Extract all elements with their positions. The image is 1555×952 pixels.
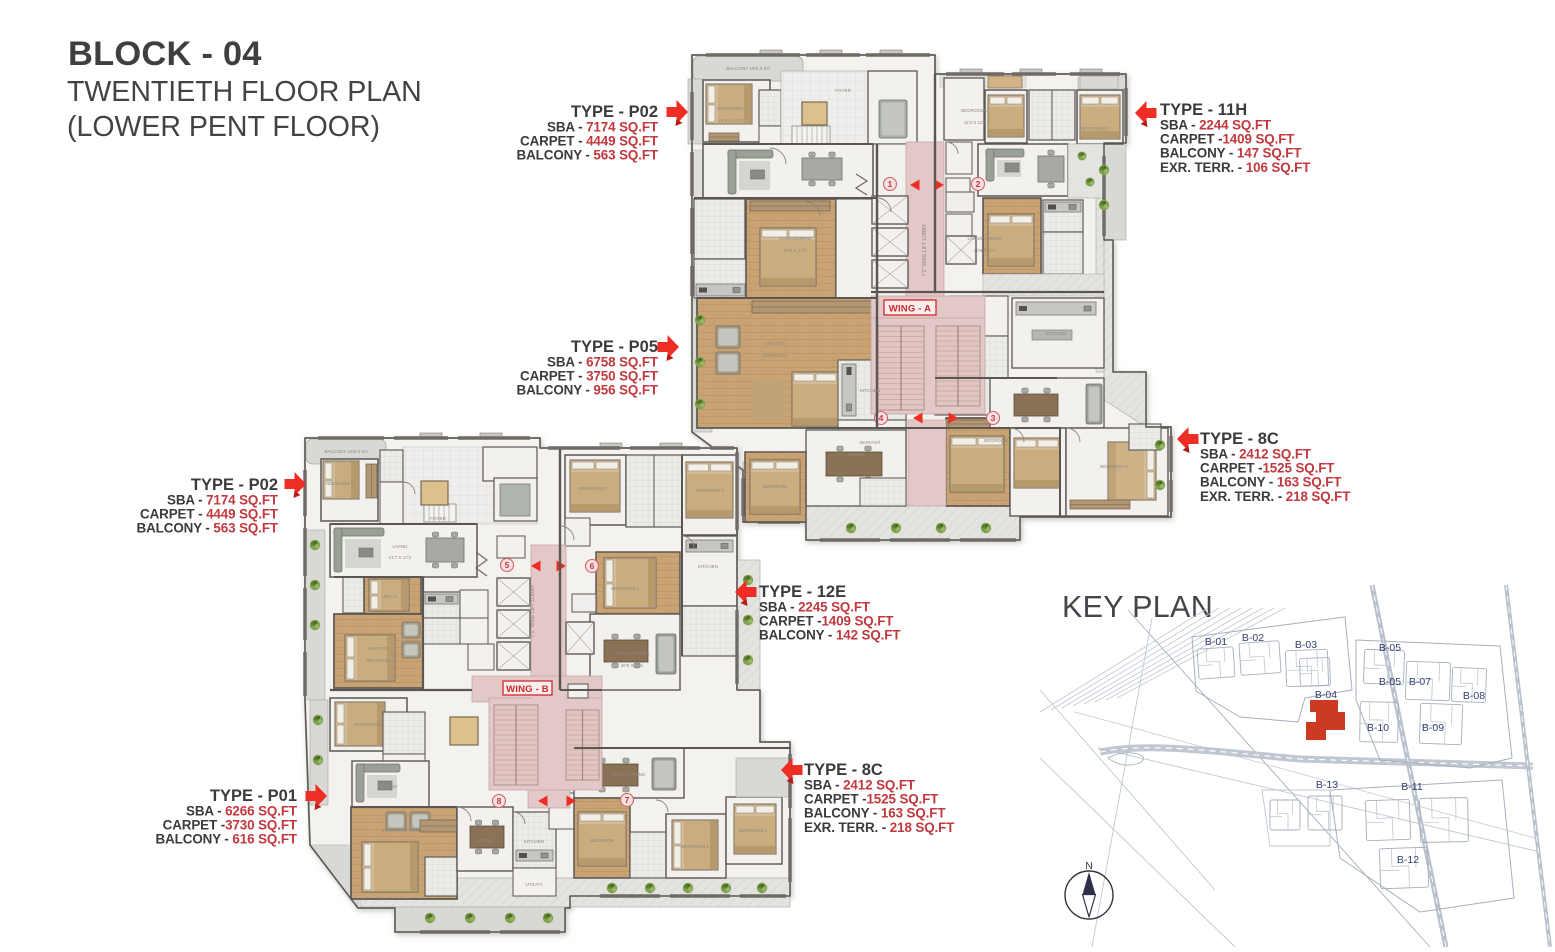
- svg-text:SBA - 7174 SQ.FT: SBA - 7174 SQ.FT: [167, 492, 279, 507]
- svg-text:CARPET - 4449 SQ.FT: CARPET - 4449 SQ.FT: [520, 134, 659, 149]
- svg-text:B-12: B-12: [1397, 854, 1419, 866]
- svg-text:TWENTIETH FLOOR PLAN: TWENTIETH FLOOR PLAN: [67, 76, 422, 108]
- svg-text:20'6 X 12'1: 20'6 X 12'1: [974, 248, 997, 253]
- svg-text:1: 1: [888, 179, 893, 189]
- svg-text:B-09: B-09: [1422, 722, 1444, 734]
- svg-text:BEDROOM 3: BEDROOM 3: [696, 488, 724, 493]
- svg-text:BALCONY - 163 SQ.FT: BALCONY - 163 SQ.FT: [804, 806, 946, 821]
- svg-text:BALCONY - 563 SQ.FT: BALCONY - 563 SQ.FT: [517, 148, 659, 163]
- svg-text:TYPE - P05: TYPE - P05: [571, 338, 658, 356]
- svg-text:TYPE - 8C: TYPE - 8C: [804, 761, 883, 779]
- svg-text:BEDROOM 2: BEDROOM 2: [1081, 126, 1109, 131]
- svg-text:EXR. TERR. - 218 SQ.FT: EXR. TERR. - 218 SQ.FT: [804, 820, 955, 835]
- svg-text:BEDROOM 3: BEDROOM 3: [961, 108, 989, 113]
- svg-text:MASTER: MASTER: [765, 341, 785, 346]
- svg-text:BALCONY - 616 SQ.FT: BALCONY - 616 SQ.FT: [156, 832, 298, 847]
- svg-text:TYPE - 8C: TYPE - 8C: [1200, 430, 1279, 448]
- svg-text:BEDROOM 3: BEDROOM 3: [611, 586, 639, 591]
- svg-text:BALCONY - 147 SQ.FT: BALCONY - 147 SQ.FT: [1160, 146, 1302, 161]
- svg-text:DINING: DINING: [477, 838, 494, 843]
- svg-text:BALCONY - 956 SQ.FT: BALCONY - 956 SQ.FT: [517, 383, 659, 398]
- svg-text:MASTER BEDROOM: MASTER BEDROOM: [382, 828, 426, 833]
- svg-text:LIVING / DINING: LIVING / DINING: [615, 651, 650, 656]
- svg-text:CARPET -1409 SQ.FT: CARPET -1409 SQ.FT: [1160, 132, 1295, 147]
- svg-text:KITCHEN: KITCHEN: [1046, 331, 1066, 336]
- svg-text:LIVING / DINING: LIVING / DINING: [611, 772, 646, 777]
- svg-text:B-02: B-02: [1242, 632, 1264, 644]
- svg-text:BEDROOM: BEDROOM: [763, 484, 787, 489]
- svg-text:EXR. TERR. - 106 SQ.FT: EXR. TERR. - 106 SQ.FT: [1160, 160, 1311, 175]
- svg-text:SBA - 2412 SQ.FT: SBA - 2412 SQ.FT: [1200, 446, 1312, 461]
- svg-text:FOYER: FOYER: [430, 516, 447, 521]
- svg-text:EXR. TERR. - 218 SQ.FT: EXR. TERR. - 218 SQ.FT: [1200, 489, 1351, 504]
- svg-text:7'1" WIDE LIFT LOBBY: 7'1" WIDE LIFT LOBBY: [530, 584, 536, 637]
- svg-text:2: 2: [976, 179, 981, 189]
- svg-text:BEDROOM 2: BEDROOM 2: [681, 844, 709, 849]
- svg-text:7: 7: [625, 795, 630, 805]
- svg-text:4: 4: [879, 413, 884, 423]
- svg-text:LIVING / DINING: LIVING / DINING: [968, 236, 1003, 241]
- svg-text:SBA - 6758 SQ.FT: SBA - 6758 SQ.FT: [547, 354, 659, 369]
- svg-text:TYPE - P02: TYPE - P02: [191, 476, 278, 494]
- svg-text:B-05: B-05: [1379, 676, 1401, 688]
- svg-text:BLOCK - 04: BLOCK - 04: [68, 35, 262, 73]
- svg-text:SERVANT: SERVANT: [859, 440, 880, 445]
- svg-text:B-11: B-11: [1401, 781, 1423, 793]
- svg-text:BEDROOM: BEDROOM: [984, 438, 1008, 443]
- svg-text:B-07: B-07: [1409, 676, 1431, 688]
- svg-text:26'3 X 17'2: 26'3 X 17'2: [784, 248, 807, 253]
- svg-text:BEDROOM: BEDROOM: [763, 353, 787, 358]
- svg-text:BALCONY - 563 SQ.FT: BALCONY - 563 SQ.FT: [137, 521, 279, 536]
- svg-text:BEDROOM 2: BEDROOM 2: [326, 481, 354, 486]
- svg-text:LIVING: LIVING: [382, 784, 397, 789]
- svg-text:5: 5: [505, 560, 510, 570]
- svg-text:MASTER: MASTER: [368, 646, 388, 651]
- svg-text:SBA - 2245 SQ.FT: SBA - 2245 SQ.FT: [759, 599, 871, 614]
- svg-text:B-05: B-05: [1379, 642, 1401, 654]
- svg-text:UTILITY: UTILITY: [525, 882, 542, 887]
- svg-text:8: 8: [497, 796, 502, 806]
- svg-text:BALCONY 19'6 X 5'0: BALCONY 19'6 X 5'0: [324, 449, 368, 454]
- svg-text:20'6 X 12'1: 20'6 X 12'1: [621, 663, 644, 668]
- svg-text:B-01: B-01: [1205, 636, 1227, 648]
- svg-text:BEDROOM 2: BEDROOM 2: [579, 486, 607, 491]
- svg-text:BALCONY 19'6 X 5'0: BALCONY 19'6 X 5'0: [726, 66, 770, 71]
- svg-text:SBA - 7174 SQ.FT: SBA - 7174 SQ.FT: [547, 119, 659, 134]
- svg-text:BEDROOM 2: BEDROOM 2: [354, 722, 382, 727]
- svg-text:TYPE - 12E: TYPE - 12E: [759, 583, 846, 601]
- svg-text:CARPET -3730 SQ.FT: CARPET -3730 SQ.FT: [163, 818, 298, 833]
- svg-text:(LOWER PENT FLOOR): (LOWER PENT FLOOR): [67, 111, 380, 143]
- svg-text:B-08: B-08: [1463, 690, 1485, 702]
- svg-text:CARPET -1525 SQ.FT: CARPET -1525 SQ.FT: [1200, 461, 1335, 476]
- svg-text:KITCHEN: KITCHEN: [524, 839, 544, 844]
- svg-text:B-04: B-04: [1315, 689, 1337, 701]
- svg-text:3: 3: [991, 413, 996, 423]
- svg-text:SBA - 2244 SQ.FT: SBA - 2244 SQ.FT: [1160, 117, 1272, 132]
- svg-text:SBA - 2412 SQ.FT: SBA - 2412 SQ.FT: [804, 777, 916, 792]
- svg-text:SBA - 6266 SQ.FT: SBA - 6266 SQ.FT: [186, 803, 298, 818]
- svg-text:KITCHEN: KITCHEN: [698, 564, 718, 569]
- svg-text:WING - B: WING - B: [506, 684, 549, 695]
- svg-text:BEDROOM: BEDROOM: [366, 658, 390, 663]
- svg-text:BED 3: BED 3: [383, 594, 397, 599]
- svg-text:LIVING/DINING: LIVING/DINING: [779, 236, 812, 241]
- svg-text:12'3 X 14'10: 12'3 X 14'10: [718, 118, 744, 123]
- svg-text:B-10: B-10: [1367, 722, 1389, 734]
- svg-text:TYPE - 11H: TYPE - 11H: [1160, 101, 1247, 119]
- svg-text:DINING: DINING: [848, 452, 865, 457]
- svg-text:N: N: [1085, 860, 1093, 872]
- svg-text:CARPET -1525 SQ.FT: CARPET -1525 SQ.FT: [804, 792, 939, 807]
- svg-text:CARPET - 3750 SQ.FT: CARPET - 3750 SQ.FT: [520, 369, 659, 384]
- svg-text:21'7 X 17'2: 21'7 X 17'2: [389, 555, 412, 560]
- svg-text:BEDROOM 2: BEDROOM 2: [717, 106, 745, 111]
- svg-text:BALCONY - 163 SQ.FT: BALCONY - 163 SQ.FT: [1200, 475, 1342, 490]
- svg-text:TYPE - P02: TYPE - P02: [571, 103, 658, 121]
- svg-text:FOYER: FOYER: [835, 88, 852, 93]
- svg-text:6: 6: [590, 561, 595, 571]
- svg-text:CARPET - 4449 SQ.FT: CARPET - 4449 SQ.FT: [140, 507, 279, 522]
- svg-text:BALCONY - 142 SQ.FT: BALCONY - 142 SQ.FT: [759, 628, 901, 643]
- svg-text:LIVING: LIVING: [392, 544, 407, 549]
- svg-text:7'1" WIDE LIFT LOBBY: 7'1" WIDE LIFT LOBBY: [922, 223, 928, 276]
- svg-text:KITCHEN: KITCHEN: [860, 388, 880, 393]
- svg-text:TYPE - P01: TYPE - P01: [210, 787, 297, 805]
- svg-text:BEDROOM: BEDROOM: [590, 838, 614, 843]
- svg-text:11'0 X 12'0: 11'0 X 12'0: [964, 120, 987, 125]
- svg-text:WING - A: WING - A: [889, 304, 931, 315]
- svg-text:BEDROOM 3: BEDROOM 3: [1100, 464, 1128, 469]
- svg-text:B-03: B-03: [1295, 639, 1317, 651]
- svg-text:BEDROOM 3: BEDROOM 3: [739, 828, 767, 833]
- svg-text:B-13: B-13: [1316, 779, 1338, 791]
- svg-text:CARPET -1409 SQ.FT: CARPET -1409 SQ.FT: [759, 614, 894, 629]
